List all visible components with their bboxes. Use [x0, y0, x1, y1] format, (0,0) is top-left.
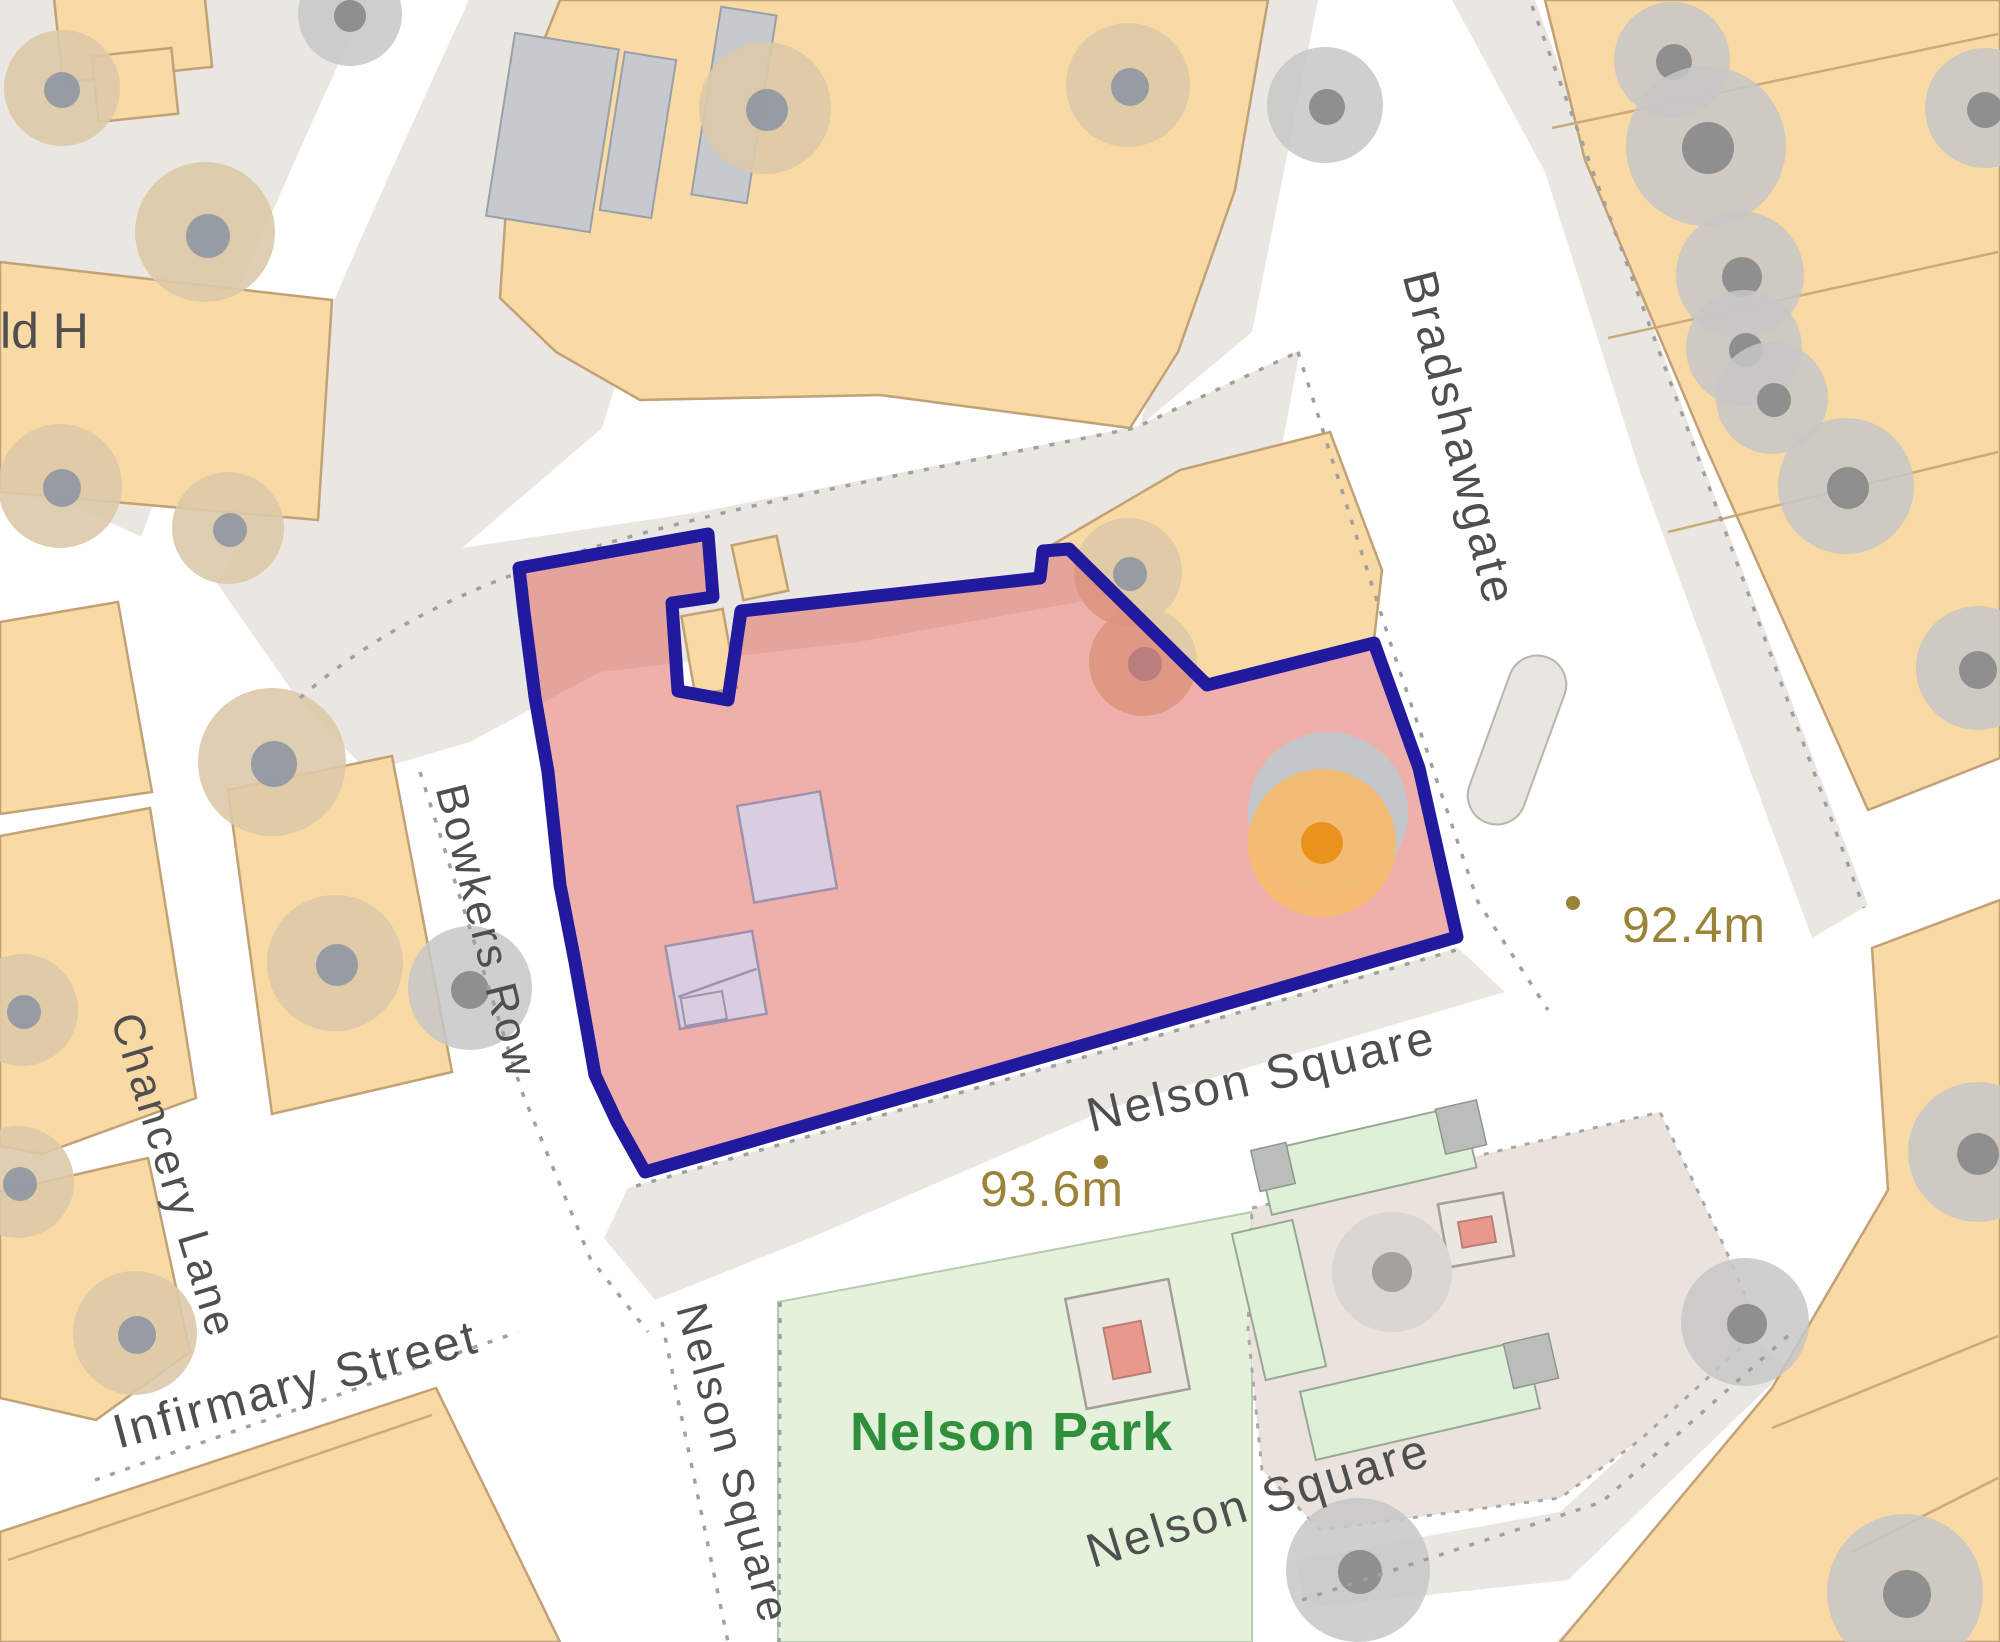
street-label-edge-fragment: ld H [0, 303, 89, 359]
tree-icon [1681, 1258, 1809, 1386]
tree-icon [135, 162, 275, 302]
spot-height-dot [1566, 896, 1580, 910]
tree-icon [198, 688, 346, 836]
tree-icon [1626, 66, 1786, 226]
tree-icon [1066, 23, 1190, 147]
map-canvas: 92.4m 93.6m Bradshawgate Bowkers Row Cha… [0, 0, 2000, 1642]
tree-icon [267, 895, 403, 1031]
tree-icon [1286, 1498, 1430, 1642]
tree-icon [699, 42, 831, 174]
spot-height-south: 93.6m [980, 1161, 1124, 1217]
tree-icon [1267, 47, 1383, 163]
map-viewport[interactable]: 92.4m 93.6m Bradshawgate Bowkers Row Cha… [0, 0, 2000, 1642]
place-label-nelson-park: Nelson Park [850, 1402, 1173, 1462]
traffic-island [1460, 647, 1575, 832]
spot-height-east: 92.4m [1622, 897, 1766, 953]
tree-icon [172, 472, 284, 584]
tree-icon [1778, 418, 1914, 554]
tree-icon [73, 1271, 197, 1395]
tree-icon [0, 424, 122, 548]
street-label-bradshawgate: Bradshawgate [1392, 265, 1526, 611]
tree-icon [4, 30, 120, 146]
park-monument [1065, 1279, 1189, 1409]
